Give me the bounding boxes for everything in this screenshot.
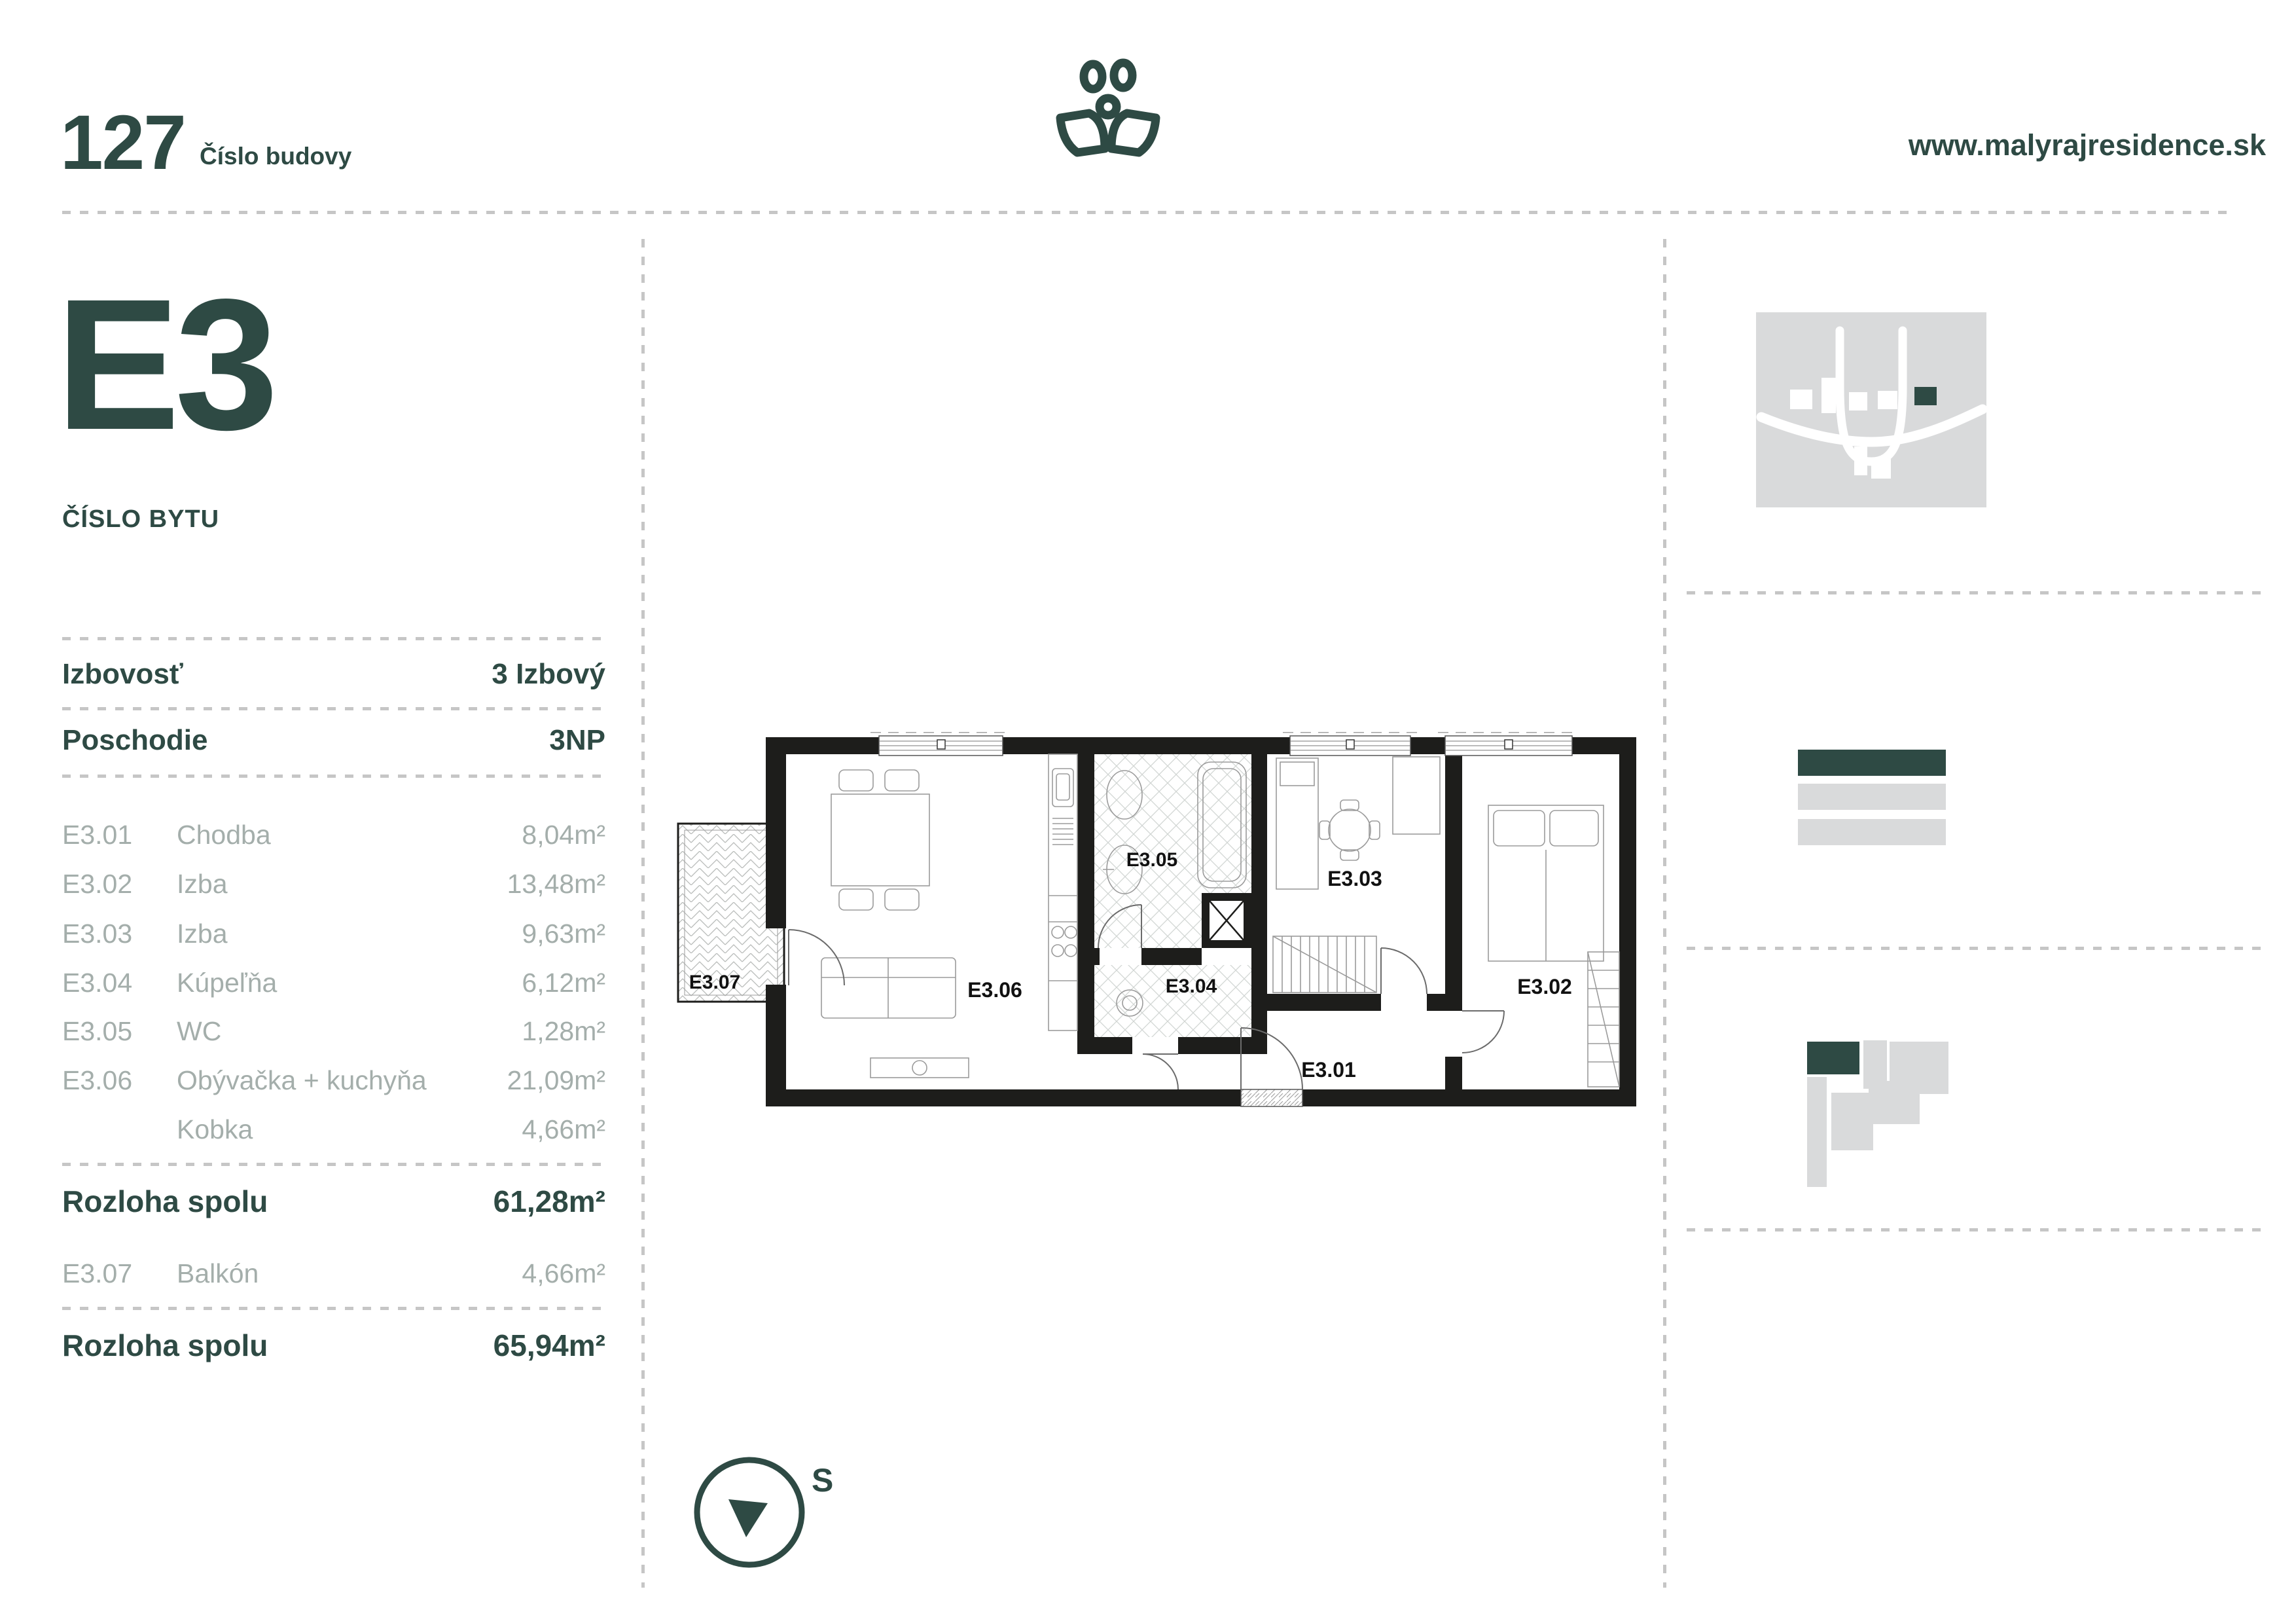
room-name: Kúpeľňa <box>177 968 522 998</box>
room-label-e3-06: E3.06 <box>967 978 1022 1002</box>
plant-logo-icon <box>1052 56 1164 164</box>
compass-icon <box>691 1453 809 1571</box>
room-code: E3.07 <box>62 1258 177 1289</box>
room-code: E3.04 <box>62 968 177 998</box>
floor-bar <box>1798 819 1946 845</box>
floor-bar <box>1798 784 1946 810</box>
room-row: E3.05 WC 1,28m² <box>62 1016 605 1047</box>
building-number: 127 <box>60 98 185 187</box>
footprint-highlighted-unit <box>1807 1042 1859 1074</box>
room-area: 1,28m² <box>522 1016 605 1047</box>
subtotal-row: Rozloha spolu 61,28m² <box>62 1184 605 1219</box>
detail-value: 3NP <box>549 724 605 757</box>
detail-value: 3 Izbový <box>492 658 605 691</box>
table-divider <box>62 1307 605 1310</box>
room-area: 8,04m² <box>522 820 605 850</box>
right-divider <box>1687 591 2265 594</box>
room-code: E3.02 <box>62 869 177 900</box>
detail-label: Poschodie <box>62 724 208 757</box>
table-divider <box>62 637 605 640</box>
unit-number-label: ČÍSLO BYTU <box>62 505 219 534</box>
subtotal-label: Rozloha spolu <box>62 1184 268 1219</box>
room-code: E3.05 <box>62 1016 177 1047</box>
site-map <box>1756 312 1986 507</box>
entrance-threshold <box>1241 1089 1302 1106</box>
unit-number: E3 <box>56 272 274 458</box>
room-label-e3-05: E3.05 <box>1126 849 1177 871</box>
room-label-e3-04: E3.04 <box>1166 976 1217 997</box>
detail-label: Izbovosť <box>62 658 183 691</box>
floor-plan: E3.01 E3.02 E3.03 E3.04 E3.05 E3.06 E3.0… <box>674 732 1643 1125</box>
room-label-e3-07: E3.07 <box>689 972 740 993</box>
table-divider <box>62 775 605 778</box>
room-name: Izba <box>177 919 522 949</box>
room-row: E3.06 Obývačka + kuchyňa 21,09m² <box>62 1065 605 1096</box>
right-divider <box>1687 1228 2265 1231</box>
floor-bar-active <box>1798 750 1946 776</box>
building-number-label: Číslo budovy <box>200 143 351 170</box>
table-divider <box>62 1163 605 1166</box>
room-area: 9,63m² <box>522 919 605 949</box>
room-area: 4,66m² <box>522 1114 605 1145</box>
room-row: E3.03 Izba 9,63m² <box>62 919 605 949</box>
map-highlighted-building <box>1914 387 1937 405</box>
floor-plate-diagram <box>1803 1038 1950 1188</box>
room-name: WC <box>177 1016 522 1047</box>
room-name: Kobka <box>177 1114 522 1145</box>
website-url: www.malyrajresidence.sk <box>1909 128 2266 162</box>
table-divider <box>62 707 605 710</box>
balcony-row: E3.07 Balkón 4,66m² <box>62 1258 605 1289</box>
room-code: E3.01 <box>62 820 177 850</box>
total-value: 65,94m² <box>493 1328 605 1363</box>
room-name: Chodba <box>177 820 522 850</box>
room-row: E3.02 Izba 13,48m² <box>62 869 605 900</box>
room-area: 21,09m² <box>507 1065 605 1096</box>
room-label-e3-03: E3.03 <box>1327 867 1382 890</box>
room-label-e3-02: E3.02 <box>1517 975 1572 998</box>
room-code: E3.03 <box>62 919 177 949</box>
column-divider-right <box>1663 239 1666 1588</box>
total-row: Rozloha spolu 65,94m² <box>62 1328 605 1363</box>
room-name: Obývačka + kuchyňa <box>177 1065 507 1096</box>
room-code: E3.06 <box>62 1065 177 1096</box>
room-name: Izba <box>177 869 507 900</box>
subtotal-value: 61,28m² <box>493 1184 605 1219</box>
apartment-sheet: 127 Číslo budovy www.malyrajresidence.sk… <box>0 0 2296 1623</box>
room-label-e3-01: E3.01 <box>1301 1058 1356 1082</box>
right-divider <box>1687 947 2265 950</box>
detail-row-poschodie: Poschodie 3NP <box>62 724 605 757</box>
compass-south-label: S <box>812 1461 833 1499</box>
room-row: E3.01 Chodba 8,04m² <box>62 820 605 850</box>
header-divider <box>62 211 2233 214</box>
room-area: 4,66m² <box>522 1258 605 1289</box>
room-area: 13,48m² <box>507 869 605 900</box>
room-area: 6,12m² <box>522 968 605 998</box>
room-row: E3.04 Kúpeľňa 6,12m² <box>62 968 605 998</box>
column-divider-left <box>641 239 645 1588</box>
room-name: Balkón <box>177 1258 522 1289</box>
detail-row-izbovost: Izbovosť 3 Izbový <box>62 658 605 691</box>
room-row: Kobka 4,66m² <box>62 1114 605 1145</box>
total-label: Rozloha spolu <box>62 1328 268 1363</box>
